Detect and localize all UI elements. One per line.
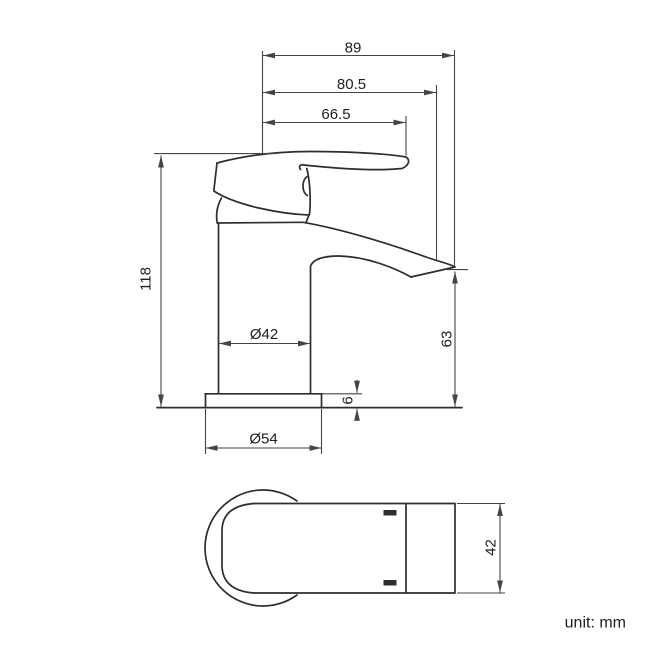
dimension-text-base-diameter: Ø54 bbox=[249, 431, 277, 448]
plan-body-rounded-end bbox=[222, 504, 254, 594]
dimension-text-base-thickness: 6 bbox=[340, 396, 357, 404]
dimension-text-plan-width: 42 bbox=[483, 539, 500, 556]
body-dome-shoulder bbox=[217, 198, 222, 223]
dimension-text-body-diameter: Ø42 bbox=[250, 326, 278, 343]
base-flange-outline bbox=[205, 394, 322, 407]
technical-drawing-page: 89 80.5 66.5 118 63 Ø42 6 Ø54 42 unit: m… bbox=[0, 0, 650, 650]
faucet-technical-drawing: 89 80.5 66.5 118 63 Ø42 6 Ø54 42 unit: m… bbox=[0, 0, 650, 650]
dimension-text-outlet-reach: 80.5 bbox=[337, 76, 366, 93]
dimension-text-outlet-height: 63 bbox=[439, 331, 456, 348]
dimension-text-total-height: 118 bbox=[138, 267, 155, 291]
dimension-text-total-reach: 89 bbox=[345, 40, 362, 57]
spout-underside-curve bbox=[311, 256, 412, 394]
handle-pivot-detail bbox=[303, 177, 308, 196]
plan-outlet-marker-bottom bbox=[384, 580, 397, 586]
plan-handle-arc bbox=[205, 490, 297, 606]
handle-grip-outline bbox=[214, 163, 309, 223]
spout-top-curve bbox=[303, 222, 455, 277]
body-top-edge bbox=[217, 222, 303, 223]
handle-neck-front-edge bbox=[307, 169, 310, 215]
plan-body-outline bbox=[254, 504, 455, 594]
handle-lever-outline bbox=[217, 152, 409, 170]
dimension-text-handle-reach: 66.5 bbox=[321, 106, 350, 123]
unit-label: unit: mm bbox=[565, 615, 626, 632]
plan-outlet-marker-top bbox=[384, 510, 397, 516]
